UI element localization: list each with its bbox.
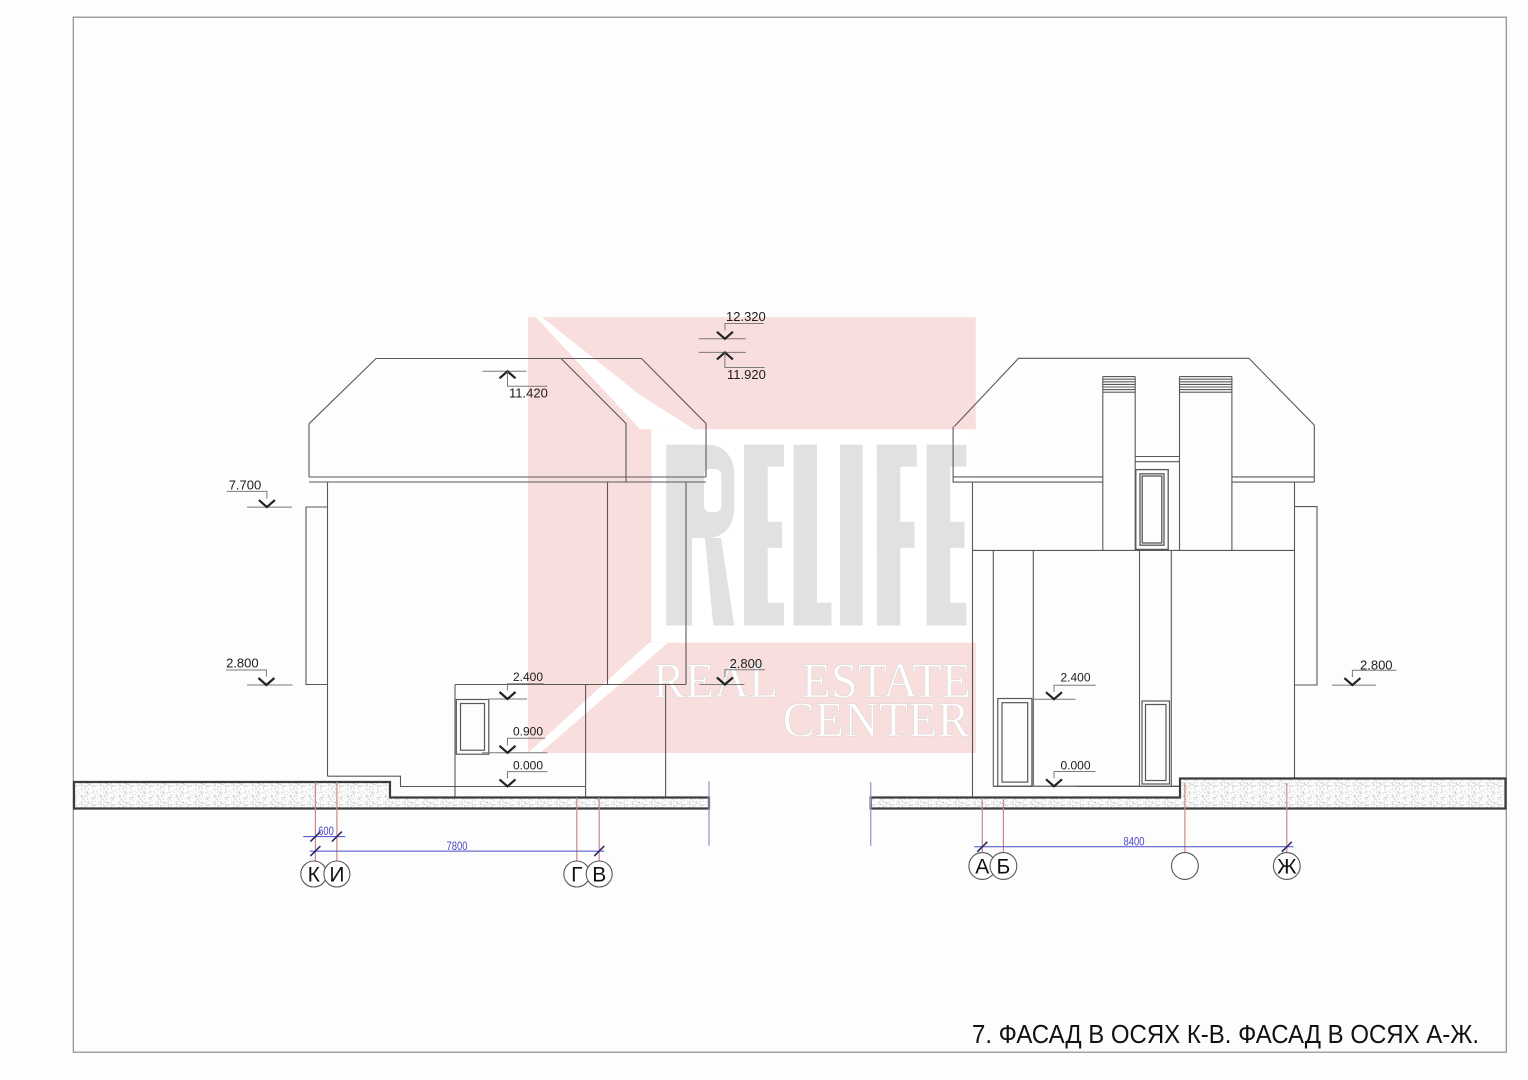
svg-text:Ж: Ж (1277, 856, 1297, 879)
svg-text:А: А (975, 856, 989, 879)
svg-text:К: К (308, 864, 321, 887)
svg-text:0.000: 0.000 (1061, 759, 1091, 773)
svg-text:CENTER: CENTER (783, 691, 971, 747)
svg-text:2.400: 2.400 (513, 670, 543, 684)
svg-text:12.320: 12.320 (726, 309, 766, 324)
svg-text:2.800: 2.800 (226, 656, 259, 671)
svg-text:600: 600 (318, 824, 334, 838)
svg-text:Б: Б (997, 856, 1011, 879)
svg-text:11.420: 11.420 (509, 386, 548, 401)
svg-text:0.000: 0.000 (513, 759, 543, 773)
svg-text:11.920: 11.920 (727, 367, 766, 382)
svg-text:2.800: 2.800 (730, 656, 763, 671)
svg-text:2.400: 2.400 (1061, 670, 1091, 684)
svg-text:В: В (592, 864, 606, 887)
svg-text:И: И (329, 864, 344, 887)
svg-text:7.700: 7.700 (229, 477, 262, 492)
svg-text:Г: Г (571, 864, 582, 887)
svg-text:7. ФАСАД В ОСЯХ К-В. ФАСАД В: 7. ФАСАД В ОСЯХ К-В. ФАСАД В ОСЯХ А-Ж. (972, 1019, 1479, 1049)
svg-text:0.900: 0.900 (513, 725, 543, 739)
svg-text:7800: 7800 (447, 839, 468, 853)
svg-text:8400: 8400 (1124, 835, 1145, 849)
